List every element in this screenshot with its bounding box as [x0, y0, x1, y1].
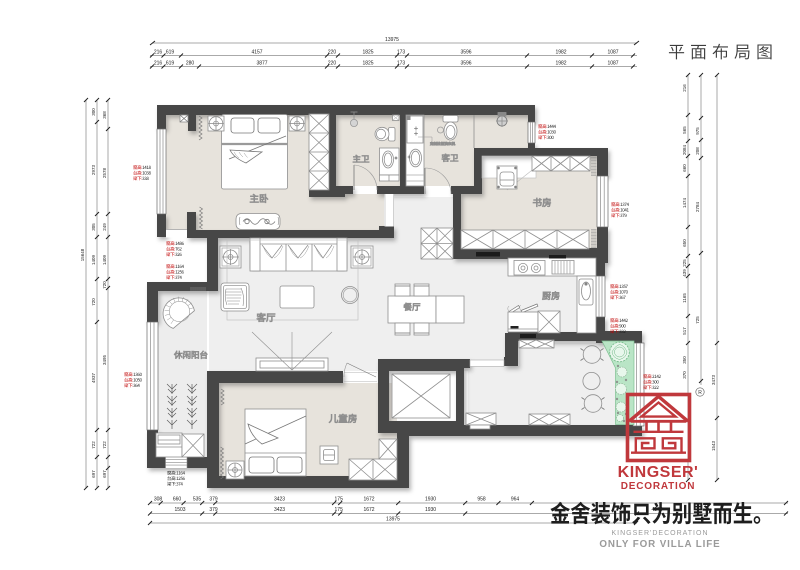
- svg-text:173: 173: [397, 61, 406, 67]
- svg-text:1672: 1672: [363, 497, 374, 503]
- svg-text:650: 650: [682, 239, 687, 247]
- svg-text:2784: 2784: [695, 201, 700, 212]
- svg-text:1409: 1409: [91, 254, 96, 265]
- svg-text:1165: 1165: [682, 293, 687, 303]
- svg-text:173: 173: [397, 50, 406, 56]
- svg-text:3423: 3423: [274, 497, 285, 503]
- svg-text:1543: 1543: [711, 440, 716, 451]
- svg-text:1825: 1825: [362, 61, 373, 67]
- svg-text:1409: 1409: [102, 254, 107, 265]
- svg-text:ONLY FOR VILLA LIFE: ONLY FOR VILLA LIFE: [599, 539, 720, 550]
- svg-text:3473: 3473: [711, 374, 716, 385]
- svg-text:DECORATION: DECORATION: [621, 481, 695, 492]
- svg-text:308: 308: [154, 497, 163, 503]
- svg-text:216: 216: [154, 50, 163, 56]
- svg-text:208: 208: [695, 147, 700, 155]
- svg-text:216: 216: [154, 61, 163, 67]
- svg-text:2578: 2578: [102, 167, 107, 178]
- svg-text:216: 216: [682, 84, 687, 92]
- svg-text:1930: 1930: [425, 497, 436, 503]
- svg-text:1474: 1474: [682, 197, 687, 208]
- svg-text:697: 697: [91, 470, 96, 478]
- svg-text:1087: 1087: [607, 50, 618, 56]
- svg-text:660: 660: [173, 497, 182, 503]
- svg-text:3596: 3596: [460, 61, 471, 67]
- svg-text:1982: 1982: [555, 61, 566, 67]
- svg-text:975: 975: [695, 127, 700, 135]
- svg-text:1087: 1087: [607, 61, 618, 67]
- svg-text:3596: 3596: [460, 50, 471, 56]
- svg-text:280: 280: [186, 61, 195, 67]
- svg-text:3877: 3877: [256, 61, 267, 67]
- svg-text:720: 720: [102, 281, 107, 289]
- svg-text:350: 350: [682, 356, 687, 364]
- svg-text:697: 697: [102, 470, 107, 478]
- svg-text:725: 725: [695, 316, 700, 324]
- svg-text:379: 379: [209, 497, 218, 503]
- svg-text:175: 175: [335, 507, 344, 513]
- svg-text:722: 722: [91, 441, 96, 449]
- svg-text:220: 220: [328, 50, 337, 56]
- svg-text:175: 175: [335, 497, 344, 503]
- svg-text:565: 565: [682, 126, 687, 134]
- svg-text:439: 439: [682, 269, 687, 277]
- svg-text:1672: 1672: [363, 507, 374, 513]
- svg-text:619: 619: [166, 50, 175, 56]
- svg-text:379: 379: [209, 507, 218, 513]
- svg-text:958: 958: [477, 497, 486, 503]
- svg-text:1930: 1930: [425, 507, 436, 513]
- svg-text:13975: 13975: [385, 37, 399, 43]
- svg-text:305: 305: [91, 223, 96, 231]
- svg-text:2973: 2973: [91, 164, 96, 175]
- svg-text:722: 722: [102, 441, 107, 449]
- svg-text:3495: 3495: [102, 354, 107, 365]
- svg-text:R: R: [698, 390, 702, 396]
- svg-text:964: 964: [511, 497, 520, 503]
- svg-text:249: 249: [102, 223, 107, 231]
- svg-text:13975: 13975: [386, 517, 400, 523]
- svg-text:4157: 4157: [251, 50, 262, 56]
- svg-text:KINGSER': KINGSER': [618, 464, 699, 481]
- svg-text:2084: 2084: [682, 144, 687, 155]
- svg-text:1503: 1503: [174, 507, 185, 513]
- svg-text:KINGSER'DECORATION: KINGSER'DECORATION: [612, 530, 709, 537]
- svg-text:220: 220: [328, 61, 337, 67]
- svg-text:3423: 3423: [274, 507, 285, 513]
- svg-text:720: 720: [91, 298, 96, 306]
- svg-text:1982: 1982: [555, 50, 566, 56]
- svg-text:1825: 1825: [362, 50, 373, 56]
- svg-text:517: 517: [682, 327, 687, 335]
- svg-text:370: 370: [682, 371, 687, 379]
- svg-text:368: 368: [102, 111, 107, 119]
- svg-text:535: 535: [193, 497, 202, 503]
- svg-text:225: 225: [682, 259, 687, 267]
- svg-text:4937: 4937: [91, 372, 96, 383]
- svg-text:300: 300: [91, 108, 96, 116]
- svg-text:15648: 15648: [80, 248, 85, 261]
- svg-text:660: 660: [682, 164, 687, 172]
- svg-text:619: 619: [166, 61, 175, 67]
